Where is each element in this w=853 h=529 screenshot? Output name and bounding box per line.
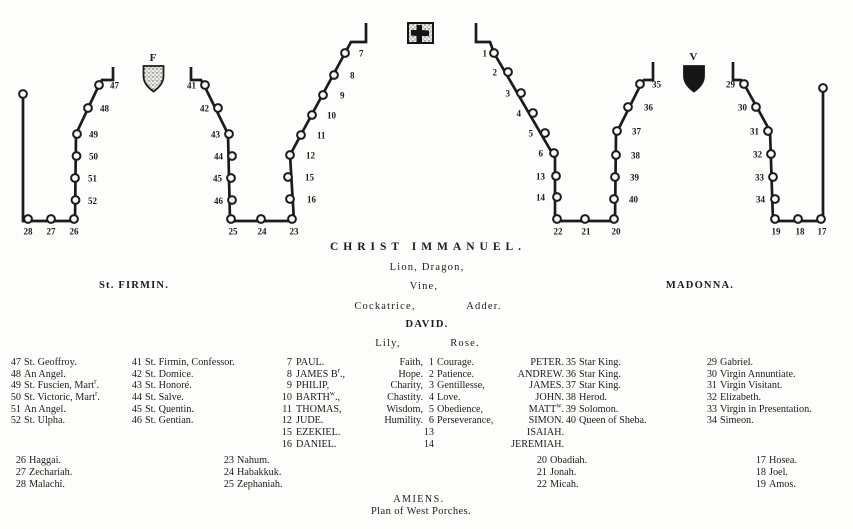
legend-number: 44 <box>132 392 142 403</box>
legend-number: 9 <box>287 380 292 391</box>
legend-apostle: THOMAS, <box>296 404 342 415</box>
legend-apostle: DANIEL. <box>296 439 336 450</box>
legend-entry: Virgin in Presentation. <box>720 404 812 415</box>
legend-quality: Love. <box>437 392 460 403</box>
legend-number: 18 <box>756 467 766 478</box>
legend-entry: Zechariah. <box>29 467 72 478</box>
legend-number: 40 <box>566 415 576 426</box>
legend-apostle: SIMON. <box>529 415 564 426</box>
legend-apostle: JAMES. <box>529 380 564 391</box>
legend-entry: Virgin Annuntiate. <box>720 369 796 380</box>
legend-number: 36 <box>566 369 576 380</box>
legend-number: 21 <box>537 467 547 478</box>
legend-entry: Simeon. <box>720 415 754 426</box>
legend-entry: Solomon. <box>579 404 618 415</box>
legend-entry: Obadiah. <box>550 455 587 466</box>
legend-number: 46 <box>132 415 142 426</box>
legend-number: 17 <box>756 455 766 466</box>
legend-virtue: Chastity. <box>387 392 423 403</box>
legend-entry: Nahum. <box>237 455 270 466</box>
legend-number: 35 <box>566 357 576 368</box>
legend-number: 51 <box>11 404 21 415</box>
legend-number: 11 <box>282 404 292 415</box>
legend-number: 27 <box>16 467 26 478</box>
legend-number: 4 <box>429 392 434 403</box>
legend-quality: Perseverance, <box>437 415 493 426</box>
legend-number: 41 <box>132 357 142 368</box>
legend-number: 29 <box>707 357 717 368</box>
legend-number: 14 <box>424 439 434 450</box>
legend-number: 39 <box>566 404 576 415</box>
legend-number: 12 <box>282 415 292 426</box>
legend-number: 37 <box>566 380 576 391</box>
legend-apostle: JUDE. <box>296 415 323 426</box>
footer-plan-title: Plan of West Porches. <box>371 506 471 517</box>
legend-entry: Elizabeth. <box>720 392 761 403</box>
legend-number: 5 <box>429 404 434 415</box>
footer-amiens: AMIENS. <box>393 494 444 505</box>
legend-virtue: Hope. <box>398 369 423 380</box>
legend-number: 31 <box>707 380 717 391</box>
legend-entry: Herod. <box>579 392 607 403</box>
legend-number: 19 <box>756 479 766 490</box>
legend-entry: Jonah. <box>550 467 576 478</box>
legend-entry: St. Firmin, Confessor. <box>145 357 235 368</box>
legend-number: 34 <box>707 415 717 426</box>
legend-entry: St. Quentin. <box>145 404 194 415</box>
legend-entry: Micah. <box>550 479 579 490</box>
legend-number: 38 <box>566 392 576 403</box>
legend-entry: Gabriel. <box>720 357 753 368</box>
legend-entry: Habakkuk. <box>237 467 281 478</box>
legend-entry: Zephaniah. <box>237 479 283 490</box>
legend-entry: An Angel. <box>24 369 66 380</box>
legend-entry: St. Fuscien, Martr. <box>24 380 99 391</box>
legend-number: 1 <box>429 357 434 368</box>
legend-number: 16 <box>282 439 292 450</box>
legend-number: 13 <box>424 427 434 438</box>
legend-quality: Courage. <box>437 357 474 368</box>
legend-entry: Hosea. <box>769 455 797 466</box>
legend-virtue: Humility. <box>384 415 423 426</box>
legend-entry: An Angel. <box>24 404 66 415</box>
legend-number: 8 <box>287 369 292 380</box>
legend-entry: Star King. <box>579 357 621 368</box>
legend-layer: 47St. Geoffroy.48An Angel.49St. Fuscien,… <box>0 0 853 529</box>
legend-entry: Malachi. <box>29 479 65 490</box>
legend-number: 24 <box>224 467 234 478</box>
legend-number: 2 <box>429 369 434 380</box>
legend-entry: Star King. <box>579 380 621 391</box>
legend-number: 30 <box>707 369 717 380</box>
legend-quality: Gentillesse, <box>437 380 485 391</box>
legend-number: 7 <box>287 357 292 368</box>
legend-apostle: ISAIAH. <box>527 427 564 438</box>
legend-number: 45 <box>132 404 142 415</box>
legend-virtue: Charity, <box>391 380 423 391</box>
legend-entry: Haggai. <box>29 455 61 466</box>
legend-number: 47 <box>11 357 21 368</box>
legend-quality: Patience. <box>437 369 474 380</box>
legend-entry: Amos. <box>769 479 796 490</box>
legend-entry: Virgin Visitant. <box>720 380 782 391</box>
legend-apostle: BARTHw., <box>296 392 340 403</box>
legend-entry: St. Victoric, Martr. <box>24 392 100 403</box>
legend-entry: Queen of Sheba. <box>579 415 647 426</box>
legend-apostle: PETER. <box>530 357 564 368</box>
legend-number: 33 <box>707 404 717 415</box>
legend-apostle: ANDREW. <box>518 369 564 380</box>
legend-number: 32 <box>707 392 717 403</box>
legend-number: 42 <box>132 369 142 380</box>
legend-number: 52 <box>11 415 21 426</box>
legend-number: 20 <box>537 455 547 466</box>
legend-entry: Joel. <box>769 467 788 478</box>
legend-entry: St. Honoré. <box>145 380 192 391</box>
legend-number: 50 <box>11 392 21 403</box>
legend-entry: St. Geoffroy. <box>24 357 77 368</box>
legend-entry: St. Gentian. <box>145 415 193 426</box>
legend-entry: St. Domice. <box>145 369 193 380</box>
legend-number: 15 <box>282 427 292 438</box>
legend-apostle: JAMES Br., <box>296 369 345 380</box>
legend-apostle: MATTw. <box>529 404 564 415</box>
legend-number: 28 <box>16 479 26 490</box>
legend-virtue: Faith, <box>400 357 424 368</box>
legend-apostle: JEREMIAH. <box>511 439 564 450</box>
legend-number: 43 <box>132 380 142 391</box>
legend-number: 25 <box>224 479 234 490</box>
legend-number: 10 <box>282 392 292 403</box>
legend-entry: St. Ulpha. <box>24 415 65 426</box>
legend-number: 6 <box>429 415 434 426</box>
legend-entry: Star King. <box>579 369 621 380</box>
legend-apostle: PHILIP, <box>296 380 329 391</box>
legend-apostle: PAUL. <box>296 357 324 368</box>
legend-apostle: EZEKIEL. <box>296 427 340 438</box>
legend-number: 49 <box>11 380 21 391</box>
legend-number: 22 <box>537 479 547 490</box>
legend-quality: Obedience, <box>437 404 483 415</box>
legend-virtue: Wisdom, <box>386 404 423 415</box>
legend-number: 26 <box>16 455 26 466</box>
legend-entry: St. Salve. <box>145 392 184 403</box>
legend-number: 3 <box>429 380 434 391</box>
plan-of-west-porches-plate: 4748495051522827264142434445462524237891… <box>0 0 853 529</box>
legend-number: 23 <box>224 455 234 466</box>
legend-number: 48 <box>11 369 21 380</box>
